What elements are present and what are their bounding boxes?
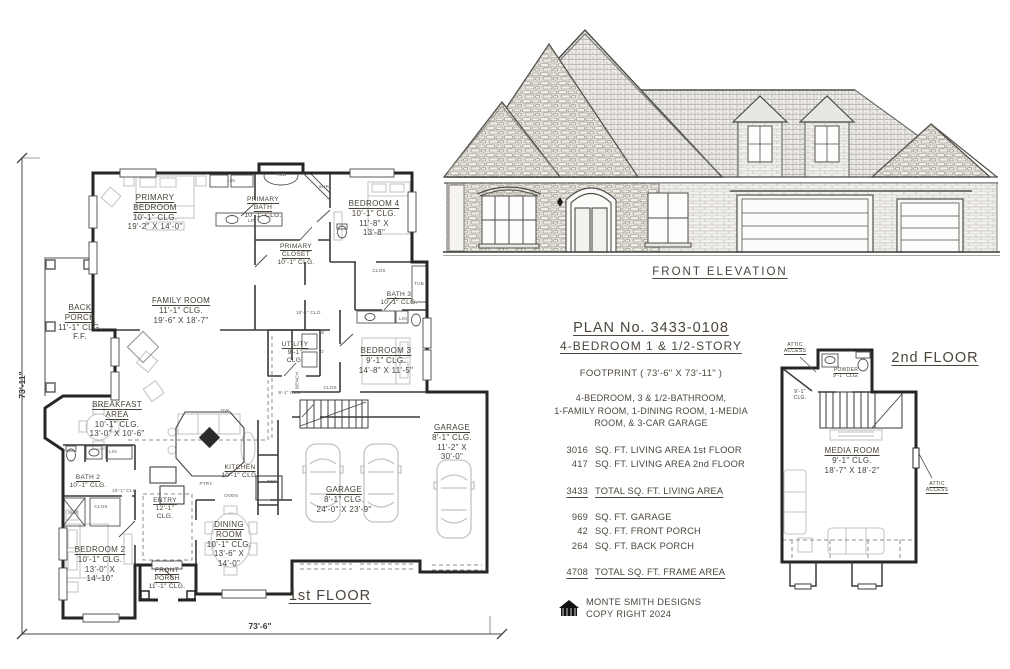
plan-info-block: PLAN No. 3433-0108 4-BEDROOM 1 & 1/2-STO… bbox=[520, 320, 782, 621]
house-logo-icon bbox=[558, 599, 580, 617]
first-floor-plan-drawing bbox=[45, 164, 487, 622]
back-porch-area-row: 264SQ. FT. BACK PORCH bbox=[520, 539, 782, 553]
plan-description: 4-BEDROOM, 3 & 1/2-BATHROOM, 1-FAMILY RO… bbox=[520, 392, 782, 430]
second-floor-title: 2nd FLOOR bbox=[860, 350, 1010, 366]
living-area-row: 3016SQ. FT. LIVING AREA 1st FLOOR bbox=[520, 443, 782, 457]
designer-credit: MONTE SMITH DESIGNS COPY RIGHT 2024 bbox=[558, 596, 782, 621]
plan-number: PLAN No. 3433-0108 bbox=[520, 320, 782, 336]
total-living-row: 3433TOTAL SQ. FT. LIVING AREA bbox=[520, 484, 782, 498]
blueprint-page: PRIMARYBEDROOM10'-1" CLG.19'-2" X 14'-0"… bbox=[0, 0, 1010, 669]
living-area-row: 417SQ. FT. LIVING AREA 2nd FLOOR bbox=[520, 457, 782, 471]
first-floor-title: 1st FLOOR bbox=[250, 588, 410, 604]
second-floor-plan-drawing bbox=[782, 350, 932, 589]
garage-area-row: 969SQ. FT. GARAGE bbox=[520, 510, 782, 524]
blueprint-linework bbox=[0, 0, 1010, 669]
total-frame-row: 4708TOTAL SQ. FT. FRAME AREA bbox=[520, 565, 782, 579]
plan-subtitle: 4-BEDROOM 1 & 1/2-STORY bbox=[520, 339, 782, 353]
front-elevation-drawing bbox=[443, 30, 1000, 256]
plan-footprint: FOOTPRINT ( 73'-6" X 73'-11" ) bbox=[520, 368, 782, 379]
front-elevation-title: FRONT ELEVATION bbox=[640, 266, 800, 278]
overall-width-dimension: 73'-6" bbox=[230, 621, 290, 631]
front-porch-area-row: 42SQ. FT. FRONT PORCH bbox=[520, 524, 782, 538]
overall-depth-dimension: 73'-11" bbox=[17, 365, 27, 405]
